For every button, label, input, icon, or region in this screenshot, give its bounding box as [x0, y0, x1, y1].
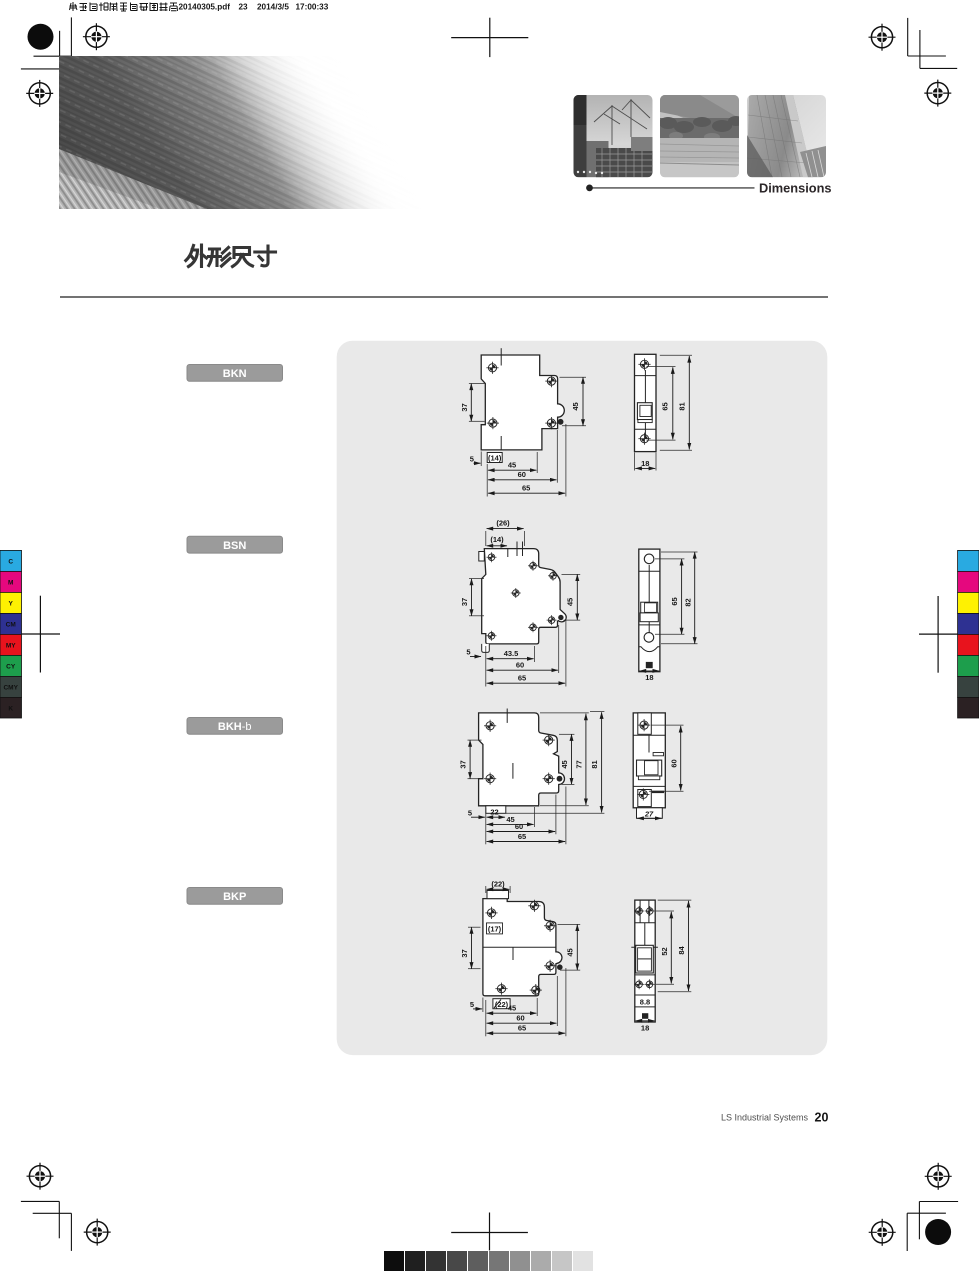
svg-text:65: 65	[660, 402, 669, 410]
svg-text:45: 45	[506, 815, 514, 824]
svg-text:60: 60	[516, 1014, 524, 1023]
svg-text:45: 45	[571, 402, 580, 410]
svg-text:60: 60	[518, 470, 526, 479]
svg-text:84: 84	[677, 946, 686, 955]
svg-text:BKH-b: BKH-b	[218, 721, 252, 733]
svg-text:45: 45	[508, 461, 516, 470]
svg-text:BKP: BKP	[223, 891, 246, 903]
svg-text:MY: MY	[6, 642, 16, 649]
svg-text:52: 52	[660, 947, 669, 955]
svg-text:60: 60	[515, 822, 523, 831]
svg-text:22: 22	[490, 808, 498, 817]
svg-text:BKN: BKN	[223, 368, 247, 380]
svg-text:23: 23	[239, 3, 249, 12]
svg-text:65: 65	[518, 832, 526, 841]
svg-text:60: 60	[516, 661, 524, 670]
svg-text:65: 65	[518, 1024, 526, 1033]
svg-text:CMY: CMY	[3, 684, 18, 691]
svg-text:65: 65	[518, 674, 526, 683]
svg-text:45: 45	[566, 598, 575, 606]
svg-text:81: 81	[590, 760, 599, 768]
svg-text:(17): (17)	[488, 924, 502, 933]
svg-text:60: 60	[669, 759, 678, 767]
svg-text:17:00:33: 17:00:33	[296, 3, 329, 12]
svg-text:M: M	[8, 579, 13, 586]
svg-text:5: 5	[468, 808, 472, 817]
svg-text:18: 18	[641, 459, 649, 468]
svg-text:Y: Y	[9, 600, 14, 607]
svg-text:77: 77	[575, 760, 584, 768]
svg-text:LS Industrial Systems: LS Industrial Systems	[721, 1113, 809, 1123]
svg-text:65: 65	[522, 484, 530, 493]
svg-text:5: 5	[466, 648, 470, 657]
svg-text:20: 20	[815, 1111, 829, 1125]
svg-text:5: 5	[470, 454, 474, 463]
svg-text:45: 45	[508, 1004, 516, 1013]
svg-text:2014/3/5: 2014/3/5	[257, 3, 289, 12]
svg-text:CY: CY	[6, 663, 16, 670]
svg-text:65: 65	[670, 597, 679, 605]
svg-text:81: 81	[677, 402, 686, 410]
svg-text:(22): (22)	[495, 1000, 509, 1009]
svg-text:27: 27	[644, 809, 654, 818]
svg-text:(22): (22)	[491, 879, 505, 888]
svg-text:18: 18	[645, 673, 653, 682]
svg-text:8.8: 8.8	[640, 997, 650, 1006]
svg-text:37: 37	[460, 403, 469, 411]
svg-text:CM: CM	[6, 621, 16, 628]
svg-text:K: K	[8, 705, 13, 712]
svg-text:37: 37	[460, 598, 469, 606]
svg-text:45: 45	[566, 948, 575, 956]
svg-text:43.5: 43.5	[504, 649, 519, 658]
svg-text:20140305.pdf: 20140305.pdf	[179, 3, 231, 12]
svg-text:45: 45	[560, 760, 569, 768]
svg-text:(26): (26)	[496, 519, 510, 528]
svg-text:37: 37	[459, 760, 468, 768]
svg-text:(14): (14)	[488, 454, 502, 463]
svg-text:5: 5	[470, 1000, 474, 1009]
svg-text:37: 37	[460, 949, 469, 957]
svg-text:18: 18	[641, 1024, 649, 1033]
svg-text:C: C	[8, 558, 13, 565]
svg-text:BSN: BSN	[223, 540, 246, 552]
svg-text:82: 82	[683, 598, 692, 606]
svg-text:(14): (14)	[490, 535, 504, 544]
svg-text:Dimensions: Dimensions	[759, 180, 832, 195]
